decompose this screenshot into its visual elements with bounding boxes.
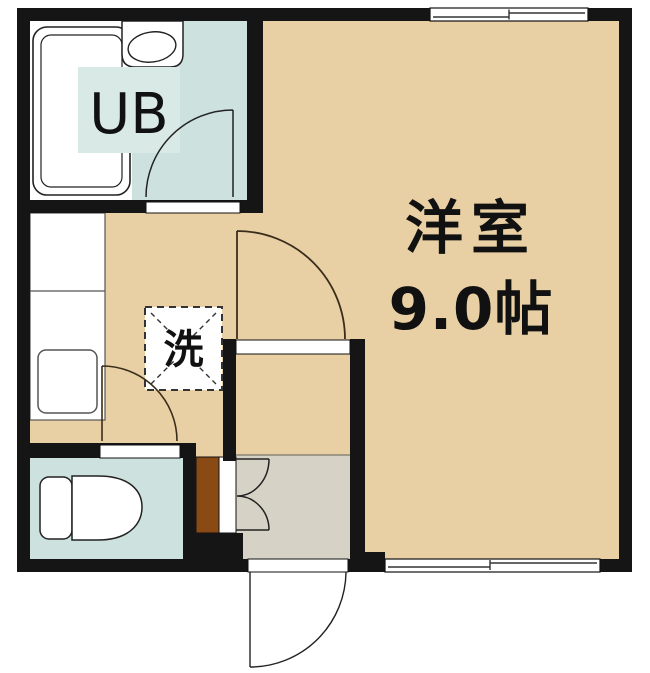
wall-right: [619, 8, 632, 572]
unit-bath-door-threshold: [146, 202, 240, 213]
main-room-name-label: 洋室: [330, 199, 612, 257]
entry-floor: [236, 455, 350, 559]
entrance-door-swing: [250, 572, 346, 667]
window-top: [430, 8, 588, 21]
hall-door-threshold: [236, 340, 350, 354]
toilet-bowl: [72, 476, 142, 540]
window-bottom-frame: [385, 559, 600, 572]
wall-entry-east: [350, 339, 365, 572]
kitchen-sink: [38, 350, 97, 413]
washing-machine-label: 洗: [145, 326, 222, 374]
toilet-door-threshold: [100, 445, 180, 458]
entrance-door-threshold: [248, 559, 348, 572]
shoe-cabinet: [196, 457, 219, 533]
window-bottom: [385, 559, 600, 572]
toilet-tank: [40, 477, 72, 539]
main-room-size-label: 9.0帖: [330, 280, 612, 338]
closet-door-track: [219, 457, 236, 533]
wall-window-jamb: [365, 552, 385, 572]
wall-closet-west: [223, 339, 236, 461]
wall-entry-south-stub: [196, 533, 243, 559]
wall-toilet-east: [183, 443, 196, 559]
wall-left: [17, 8, 30, 572]
unit-bath-label: UB: [78, 72, 180, 158]
floor-plan: UB 洋室 9.0帖 洗: [0, 0, 650, 673]
wall-unit-bath-east: [247, 8, 263, 213]
